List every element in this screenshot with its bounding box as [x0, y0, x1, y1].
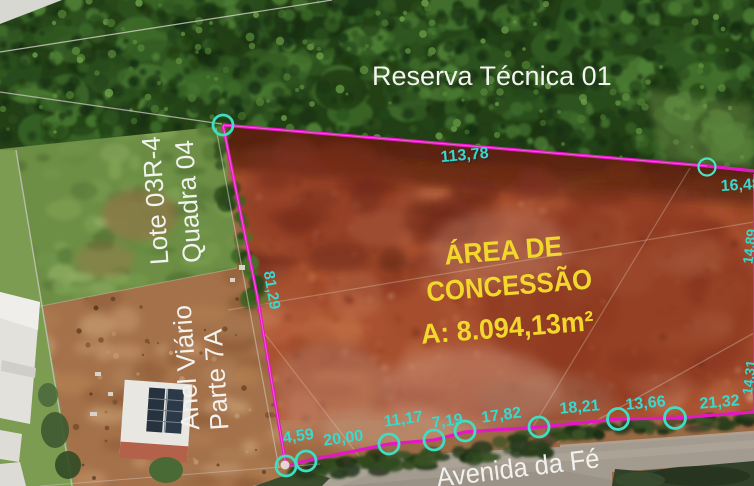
svg-text:21,32: 21,32 — [699, 392, 740, 412]
svg-text:Reserva Técnica 01: Reserva Técnica 01 — [372, 61, 612, 91]
svg-text:18,21: 18,21 — [559, 397, 600, 417]
svg-text:13,66: 13,66 — [625, 393, 666, 413]
svg-text:16,48: 16,48 — [720, 176, 754, 195]
